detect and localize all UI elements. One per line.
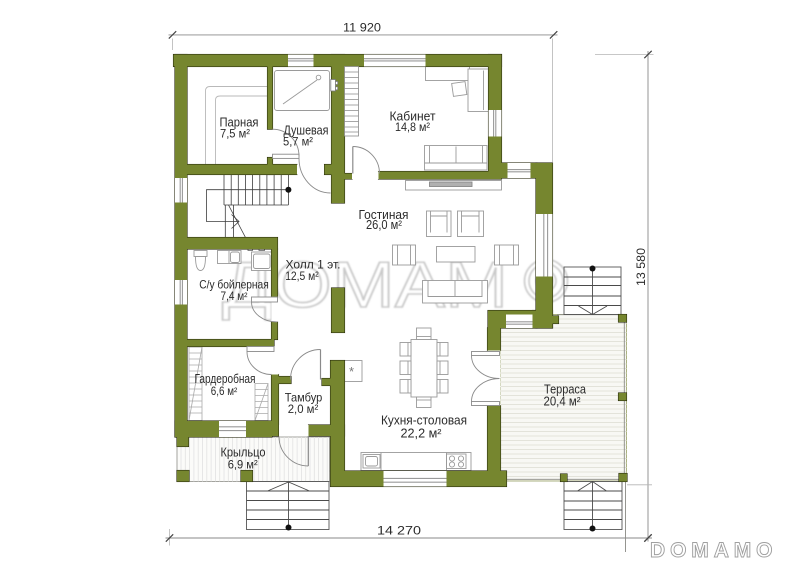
svg-text:*: * — [349, 364, 354, 379]
svg-text:7,4 м²: 7,4 м² — [221, 291, 248, 303]
svg-text:6,9 м²: 6,9 м² — [228, 458, 258, 472]
svg-text:Кухня-столовая: Кухня-столовая — [381, 414, 467, 428]
svg-text:С/у бойлерная: С/у бойлерная — [199, 278, 269, 292]
svg-text:5,7 м²: 5,7 м² — [283, 135, 313, 149]
svg-text:22,2 м²: 22,2 м² — [401, 427, 442, 441]
svg-text:2,0 м²: 2,0 м² — [288, 402, 319, 416]
svg-text:20,4 м²: 20,4 м² — [544, 395, 581, 409]
svg-text:14,8 м²: 14,8 м² — [395, 120, 430, 134]
svg-text:12,5 м²: 12,5 м² — [285, 269, 319, 283]
svg-text:14 270: 14 270 — [377, 526, 421, 538]
svg-text:Гардеробная: Гардеробная — [195, 372, 256, 386]
svg-text:DOMAMO: DOMAMO — [650, 539, 778, 562]
svg-text:6,6 м²: 6,6 м² — [211, 386, 238, 398]
svg-text:13 580: 13 580 — [636, 248, 648, 286]
svg-text:11 920: 11 920 — [343, 23, 381, 35]
svg-text:7,5 м²: 7,5 м² — [220, 127, 250, 141]
svg-text:26,0 м²: 26,0 м² — [366, 218, 402, 232]
